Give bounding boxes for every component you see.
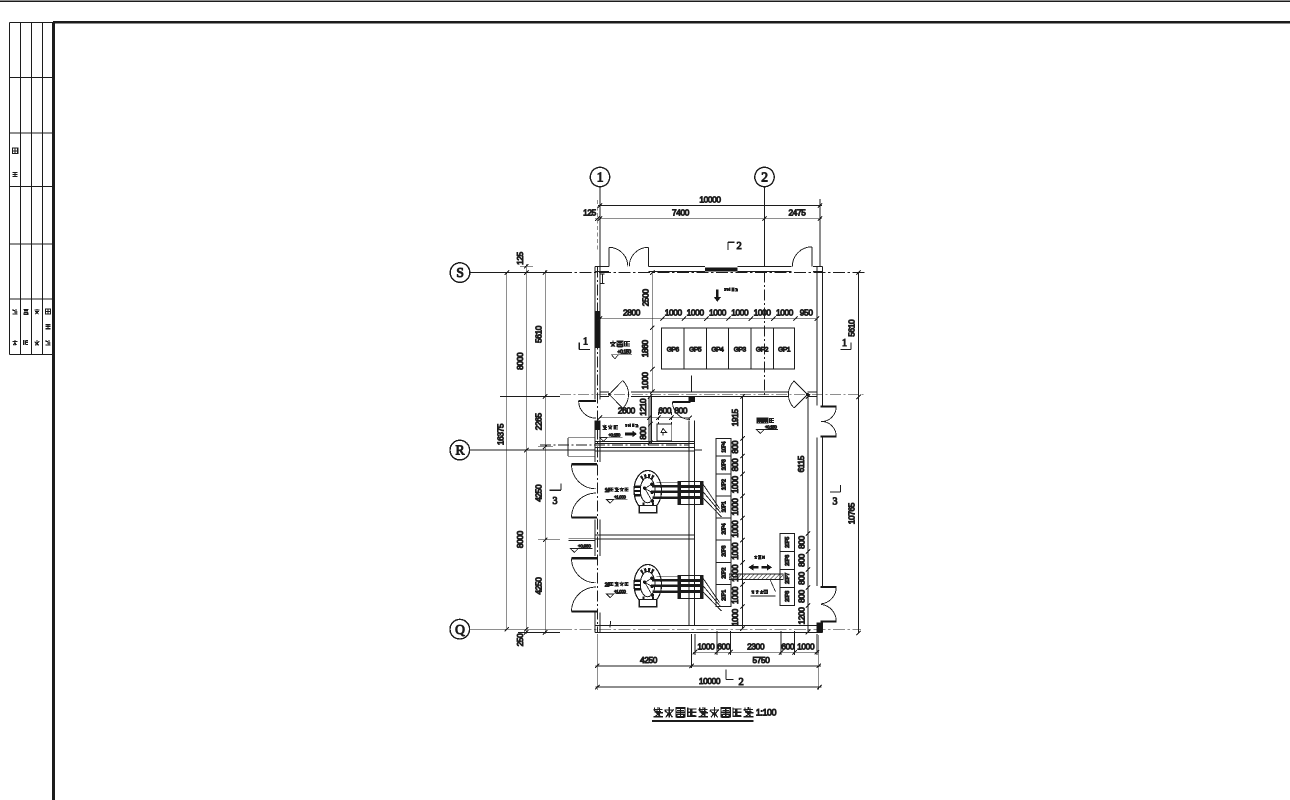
- svg-text:1000: 1000: [797, 641, 815, 651]
- svg-text:800: 800: [797, 589, 807, 603]
- svg-text:5750: 5750: [752, 655, 770, 665]
- svg-text:2: 2: [761, 170, 767, 185]
- svg-text:GP3: GP3: [734, 346, 747, 353]
- svg-text:1915: 1915: [730, 409, 740, 427]
- svg-text:800: 800: [674, 405, 688, 415]
- svg-text:1000: 1000: [730, 586, 740, 604]
- svg-text:10765: 10765: [847, 502, 857, 524]
- svg-text:1000: 1000: [697, 641, 715, 651]
- svg-text:+1.000: +1.000: [614, 494, 626, 499]
- svg-text:1000: 1000: [730, 476, 740, 494]
- svg-text:10P4: 10P4: [721, 441, 727, 452]
- svg-text:1000: 1000: [730, 498, 740, 516]
- svg-text:5610: 5610: [534, 325, 544, 343]
- svg-text:600: 600: [658, 405, 672, 415]
- svg-text:8000: 8000: [515, 530, 525, 548]
- svg-text:20P7: 20P7: [785, 573, 791, 584]
- svg-text:R: R: [455, 443, 464, 458]
- svg-text:+0.150: +0.150: [765, 424, 777, 429]
- svg-text:10000: 10000: [699, 194, 721, 204]
- svg-text:600: 600: [717, 641, 731, 651]
- svg-text:800: 800: [730, 440, 740, 454]
- svg-text:3: 3: [552, 496, 557, 507]
- svg-text:250: 250: [515, 633, 525, 647]
- svg-text:600: 600: [781, 641, 795, 651]
- svg-text:20P1: 20P1: [721, 590, 727, 601]
- svg-text:1000: 1000: [730, 608, 740, 626]
- svg-text:800: 800: [730, 458, 740, 472]
- svg-text:GP6: GP6: [667, 346, 680, 353]
- svg-text:1: 1: [583, 336, 588, 347]
- svg-text:1860: 1860: [640, 339, 650, 357]
- svg-text:20P6: 20P6: [785, 555, 791, 566]
- svg-text:125: 125: [583, 208, 597, 218]
- svg-text:800: 800: [797, 571, 807, 585]
- svg-text:2800: 2800: [623, 307, 641, 317]
- svg-text:1210: 1210: [638, 398, 648, 416]
- svg-text:+0.150: +0.150: [608, 432, 620, 437]
- svg-text:800: 800: [797, 553, 807, 567]
- svg-text:10P3: 10P3: [721, 459, 727, 470]
- svg-text:10P1: 10P1: [721, 501, 727, 512]
- svg-text:20P8: 20P8: [785, 591, 791, 602]
- svg-text:2265: 2265: [534, 412, 544, 430]
- svg-text:16375: 16375: [495, 423, 505, 445]
- svg-text:6115: 6115: [796, 455, 806, 472]
- svg-text:2475: 2475: [788, 208, 806, 218]
- svg-text:4250: 4250: [640, 655, 658, 665]
- svg-text:10000: 10000: [699, 676, 721, 686]
- svg-text:GP1: GP1: [778, 346, 791, 353]
- svg-text:+1.000: +1.000: [614, 589, 626, 594]
- svg-text:1:100: 1:100: [756, 708, 777, 718]
- svg-text:1000: 1000: [665, 307, 683, 317]
- svg-text:2300: 2300: [747, 641, 765, 651]
- svg-text:1000: 1000: [730, 542, 740, 560]
- svg-text:1000: 1000: [776, 307, 794, 317]
- svg-text:1000: 1000: [640, 372, 650, 390]
- svg-text:1000: 1000: [731, 307, 749, 317]
- svg-text:Q: Q: [455, 622, 465, 637]
- svg-text:GP5: GP5: [689, 346, 702, 353]
- svg-text:S: S: [456, 265, 463, 280]
- svg-text:3: 3: [832, 496, 837, 507]
- svg-text:GP4: GP4: [711, 346, 724, 353]
- svg-text:1200: 1200: [797, 607, 807, 625]
- svg-text:1000: 1000: [687, 307, 705, 317]
- svg-text:1#: 1#: [605, 488, 610, 494]
- svg-text:5610: 5610: [847, 319, 857, 337]
- svg-text:4250: 4250: [534, 484, 544, 502]
- svg-text:1000: 1000: [709, 307, 727, 317]
- svg-text:20P2: 20P2: [721, 567, 727, 578]
- svg-text:125: 125: [515, 251, 525, 265]
- svg-text:7400: 7400: [672, 208, 690, 218]
- svg-text:8000: 8000: [515, 352, 525, 370]
- svg-text:20P3: 20P3: [721, 545, 727, 556]
- svg-text:1000: 1000: [730, 520, 740, 538]
- svg-text:20P5: 20P5: [785, 537, 791, 548]
- svg-text:GP2: GP2: [756, 346, 769, 353]
- svg-text:1: 1: [597, 170, 603, 185]
- svg-text:2500: 2500: [640, 288, 650, 306]
- svg-text:800: 800: [638, 426, 648, 440]
- svg-text:800: 800: [797, 535, 807, 549]
- svg-text:10P2: 10P2: [721, 479, 727, 490]
- svg-text:1: 1: [842, 338, 847, 349]
- svg-text:1000: 1000: [730, 564, 740, 582]
- svg-text:2: 2: [739, 677, 744, 688]
- svg-text:2#: 2#: [605, 583, 610, 589]
- svg-text:2600: 2600: [618, 405, 636, 415]
- svg-text:4250: 4250: [534, 577, 544, 595]
- svg-text:950: 950: [800, 307, 814, 317]
- svg-text:2: 2: [737, 241, 742, 252]
- svg-text:1000: 1000: [754, 307, 772, 317]
- svg-text:20P4: 20P4: [721, 523, 727, 534]
